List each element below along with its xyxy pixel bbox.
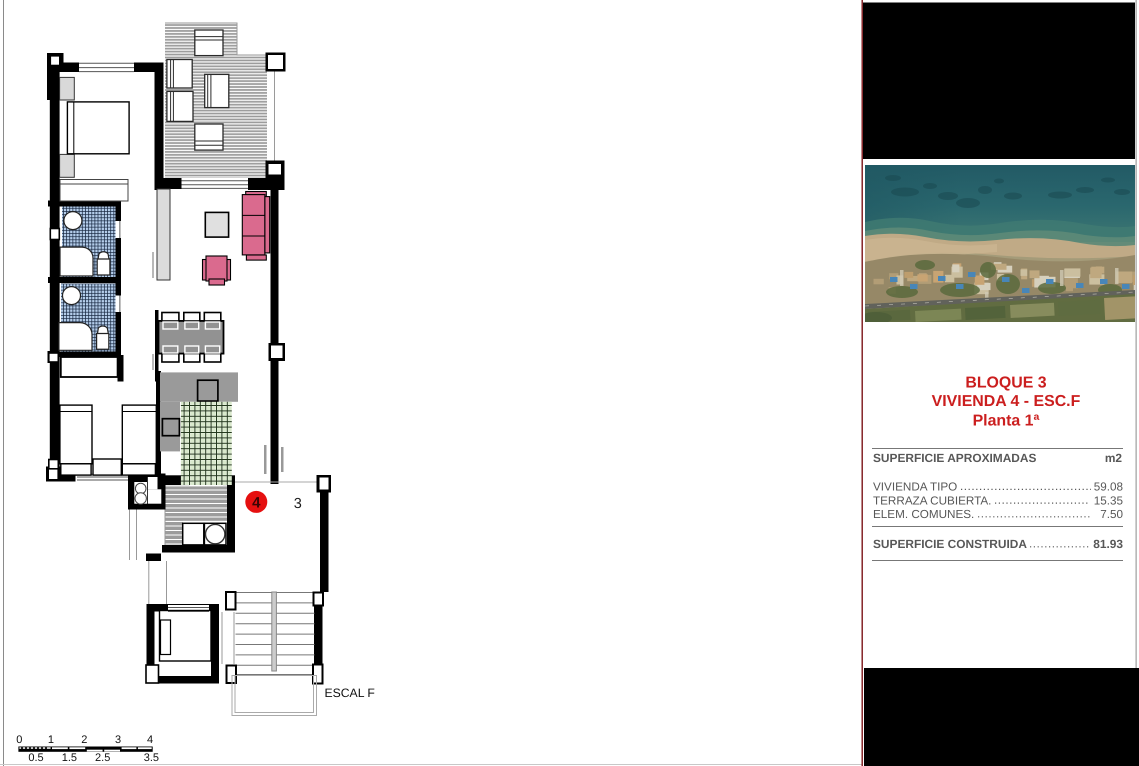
svg-text:81.93: 81.93 (1093, 537, 1123, 551)
svg-text:4: 4 (147, 734, 153, 746)
svg-text:0.5: 0.5 (28, 752, 43, 764)
svg-text:3.5: 3.5 (144, 752, 159, 764)
svg-text:3: 3 (294, 496, 302, 512)
svg-text:7.50: 7.50 (1100, 508, 1123, 521)
svg-text:2.5: 2.5 (95, 752, 110, 764)
svg-text:3: 3 (115, 734, 121, 746)
svg-text:BLOQUE 3: BLOQUE 3 (965, 375, 1046, 392)
svg-text:ESCAL F: ESCAL F (325, 686, 375, 700)
svg-text:4: 4 (252, 495, 261, 512)
svg-text:0: 0 (16, 734, 22, 746)
svg-text:SUPERFICIE CONSTRUIDA: SUPERFICIE CONSTRUIDA (873, 537, 1027, 551)
svg-text:m2: m2 (1105, 451, 1123, 465)
svg-text:VIVIENDA 4 - ESC.F: VIVIENDA 4 - ESC.F (932, 393, 1081, 410)
svg-text:1: 1 (48, 734, 54, 746)
svg-text:15.35: 15.35 (1094, 494, 1124, 507)
svg-text:Planta 1ª: Planta 1ª (973, 413, 1040, 430)
svg-text:SUPERFICIE APROXIMADAS: SUPERFICIE APROXIMADAS (873, 451, 1036, 465)
svg-text:59.08: 59.08 (1094, 481, 1123, 494)
svg-text:2: 2 (81, 734, 87, 746)
svg-text:1.5: 1.5 (62, 752, 77, 764)
svg-text:ELEM. COMUNES.: ELEM. COMUNES. (873, 508, 974, 521)
svg-text:TERRAZA CUBIERTA.: TERRAZA CUBIERTA. (873, 494, 991, 507)
svg-text:VIVIENDA TIPO: VIVIENDA TIPO (873, 481, 957, 494)
